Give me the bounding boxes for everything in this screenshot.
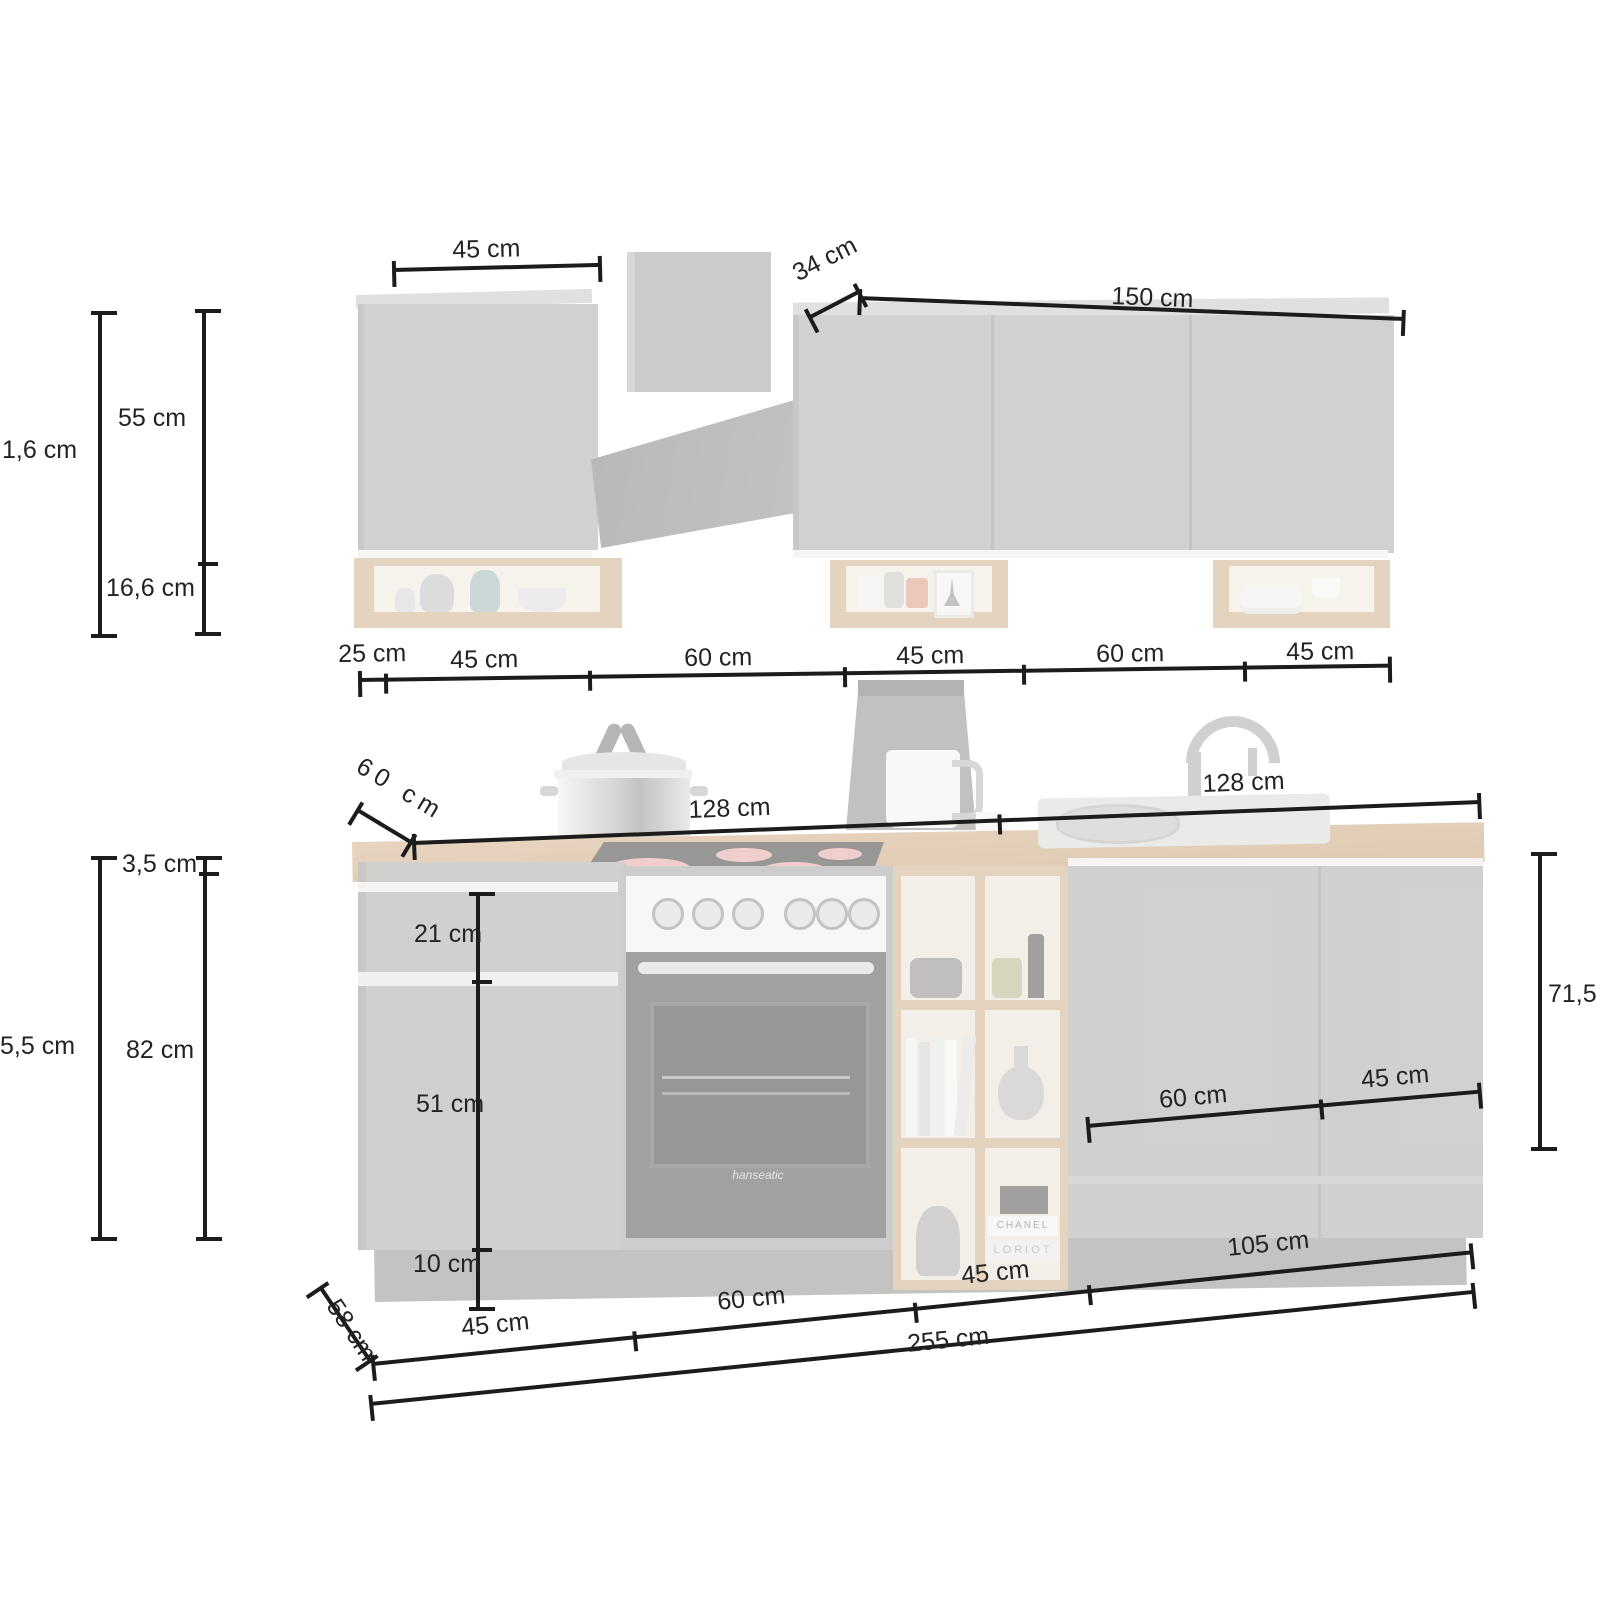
dim-label-wall-seg-1: 60 cm [684,643,752,673]
dim-label-worktop-thickness: 3,5 cm [122,850,197,879]
dim-line-counter-spans [413,800,1480,845]
dim-label-wall-left-width: 45 cm [452,234,521,265]
dim-tick [1022,665,1026,685]
dim-label-door-45: 45 cm [1360,1060,1430,1095]
dim-tick [472,980,492,984]
dim-label-counter-left-span: 128 cm [688,793,771,825]
dim-label-front-seg-3: 105 cm [1226,1226,1310,1263]
dim-label-wall-cabinet-height: 55 cm [118,404,186,433]
dim-label-front-seg-0: 45 cm [460,1307,531,1343]
dim-label-hood-depth: 34 cm [788,231,862,288]
dim-label-wall-seg-0: 45 cm [450,645,518,675]
dim-tick [384,674,388,694]
dim-label-wall-seg-3: 60 cm [1096,639,1164,669]
dim-label-wall-total-height: 1,6 cm [2,436,77,465]
dim-label-base-carcass-height: 82 cm [126,1036,194,1065]
dim-tick [632,1331,638,1351]
dim-line-hood-depth [808,290,860,320]
dim-label-wall-shelf-height: 16,6 cm [106,574,195,603]
dim-label-counter-right-span: 128 cm [1202,767,1285,799]
dim-label-base-right-height: 71,5 [1548,980,1597,1009]
kitchen-dimension-diagram: hanseatic CHANEL LORIOT 45 cm [0,0,1600,1600]
dim-line-wall-cabinet-shelf-height [202,310,206,635]
dim-label-plinth-height: 10 cm [413,1250,481,1279]
dim-label-base-total-height: 5,5 cm [0,1032,75,1061]
dim-label-base-total-width: 255 cm [906,1322,990,1359]
dim-tick [198,562,218,566]
dim-label-drawer-height: 21 cm [414,920,482,949]
dim-label-front-seg-2: 45 cm [960,1255,1031,1291]
dim-line-base-total-height [98,857,102,1240]
dim-line-wall-left-width [393,263,601,272]
dim-label-wall-seg-2: 45 cm [896,641,964,671]
dimension-layer: 45 cm 34 cm 150 cm 1,6 cm 55 cm 16,6 cm … [0,0,1600,1600]
dim-tick [1243,662,1247,682]
dim-label-wall-right-width: 150 cm [1111,282,1194,314]
dim-tick [1087,1285,1093,1305]
dim-line-base-right-height [1538,853,1542,1150]
dim-tick [588,671,592,691]
dim-line-right-door-widths [1087,1090,1481,1128]
dim-label-door-height: 51 cm [416,1090,484,1119]
dim-tick [913,1303,919,1323]
dim-label-wall-shelf-depth: 25 cm [338,639,406,669]
dim-label-door-60: 60 cm [1158,1080,1228,1115]
dim-line-base-carcass-height [203,857,207,1240]
dim-tick [843,667,847,687]
dim-label-front-seg-1: 60 cm [716,1281,787,1317]
dim-tick [199,872,219,876]
dim-tick [997,814,1002,834]
dim-line-counter-depth [356,808,413,844]
dim-line-wall-total-height [98,312,102,637]
dim-label-wall-seg-4: 45 cm [1286,637,1354,667]
dim-tick [1319,1099,1325,1119]
